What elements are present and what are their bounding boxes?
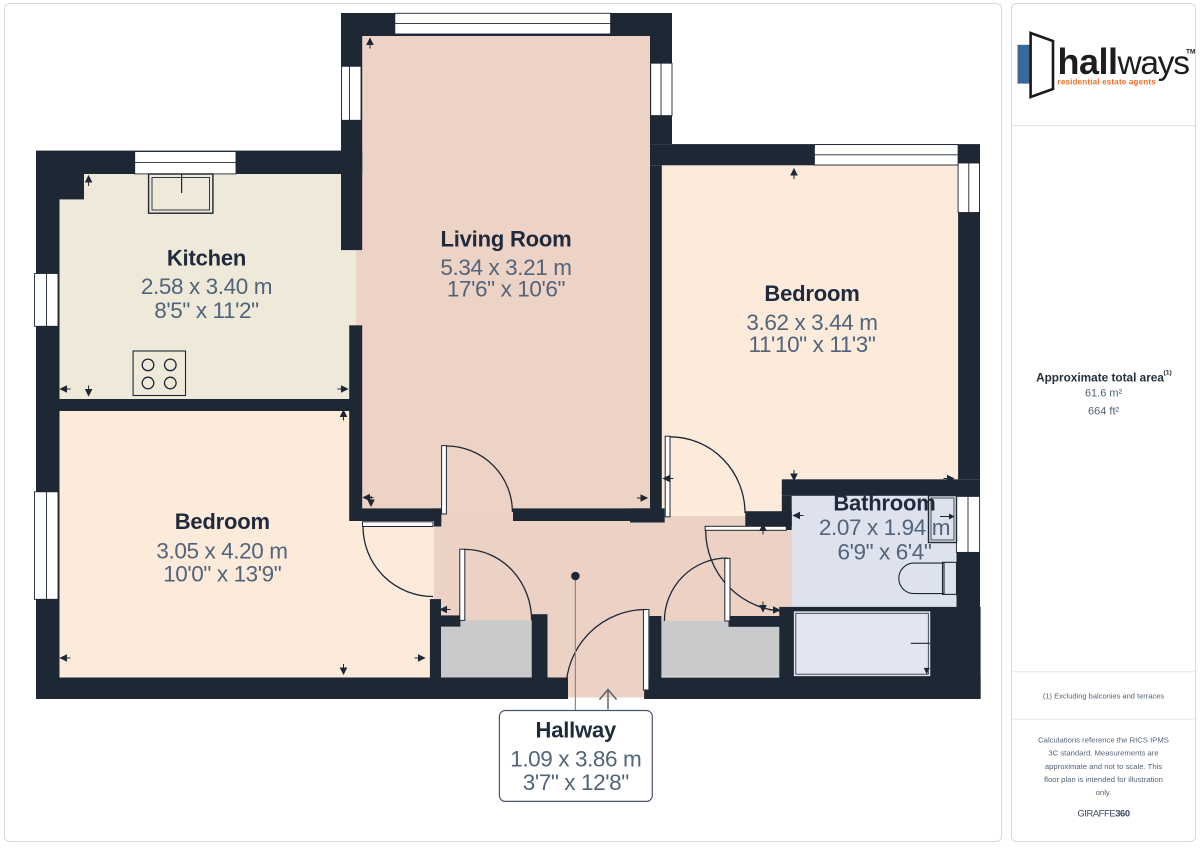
svg-text:Kitchen: Kitchen	[167, 246, 246, 271]
svg-text:approximate and not to scale.: approximate and not to scale. This	[1045, 762, 1163, 771]
svg-text:10'0" x 13'9": 10'0" x 13'9"	[163, 562, 282, 587]
svg-text:8'5" x 11'2": 8'5" x 11'2"	[154, 298, 259, 323]
svg-text:11'10" x 11'3": 11'10" x 11'3"	[749, 332, 876, 357]
svg-text:GIRAFFE360: GIRAFFE360	[1077, 807, 1129, 818]
svg-text:1.09 x 3.86 m: 1.09 x 3.86 m	[510, 747, 641, 772]
svg-text:3.05 x 4.20 m: 3.05 x 4.20 m	[156, 539, 287, 564]
svg-text:Bedroom: Bedroom	[764, 281, 859, 306]
svg-text:residential estate agents: residential estate agents	[1058, 78, 1157, 87]
svg-text:Calculations reference the RIC: Calculations reference the RICS IPMS	[1038, 736, 1169, 745]
svg-text:Living Room: Living Room	[440, 227, 571, 252]
svg-text:Hallway: Hallway	[536, 717, 617, 742]
svg-text:17'6" x 10'6": 17'6" x 10'6"	[447, 277, 566, 302]
svg-text:floor plan is intended for ill: floor plan is intended for illustration	[1044, 775, 1163, 784]
svg-text:3C standard. Measurements are: 3C standard. Measurements are	[1048, 749, 1158, 758]
svg-text:2.07 x 1.94 m: 2.07 x 1.94 m	[819, 515, 950, 540]
svg-text:2.58 x 3.40 m: 2.58 x 3.40 m	[141, 274, 272, 299]
svg-text:only.: only.	[1096, 788, 1112, 797]
svg-text:3'7" x 12'8": 3'7" x 12'8"	[523, 770, 629, 795]
svg-text:664 ft²: 664 ft²	[1088, 406, 1120, 418]
svg-text:Bedroom: Bedroom	[175, 509, 270, 534]
svg-text:hallways: hallways	[1058, 41, 1190, 82]
svg-text:TM: TM	[1186, 49, 1195, 56]
svg-text:61.6 m²: 61.6 m²	[1085, 388, 1123, 400]
svg-text:Bathroom: Bathroom	[833, 491, 935, 516]
svg-text:(1) Excluding balconies and te: (1) Excluding balconies and terraces	[1043, 692, 1165, 701]
svg-text:6'9" x 6'4": 6'9" x 6'4"	[838, 540, 932, 565]
svg-text:Approximate total area: Approximate total area	[1036, 371, 1164, 385]
svg-text:(1): (1)	[1164, 370, 1172, 377]
